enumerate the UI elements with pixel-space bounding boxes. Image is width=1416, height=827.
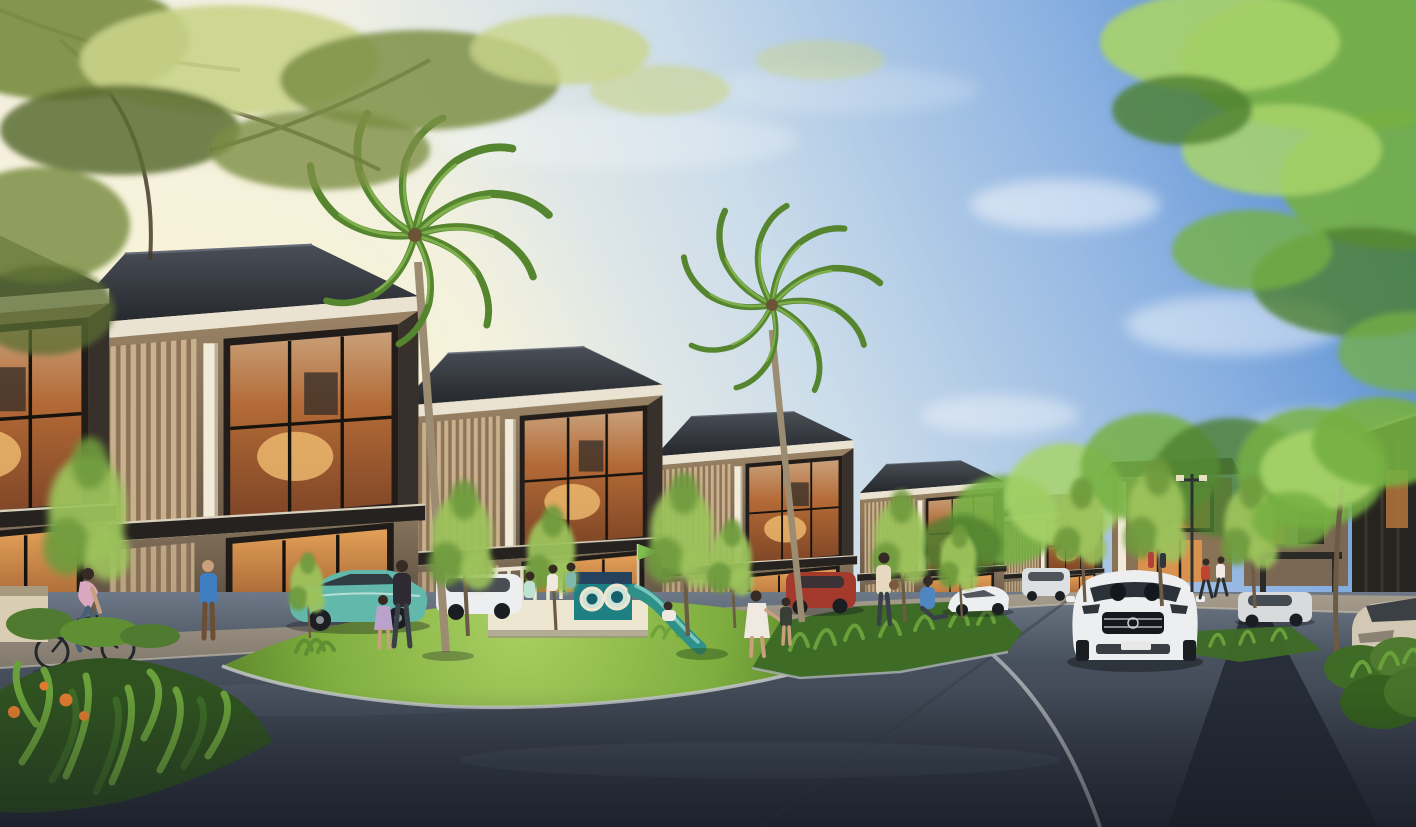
estate-wheel [448,604,464,620]
head [782,598,791,607]
minivan-wheel [1027,591,1037,601]
kid-head [549,565,558,574]
palm-crown-center [408,228,422,242]
planter-shade [0,586,48,596]
green-foliage [1172,210,1332,290]
mercedes-grille [1102,612,1164,634]
kid-head [526,572,535,581]
white-sedan-driving [1066,570,1205,672]
head [202,560,214,572]
rendering-stage [0,0,1416,827]
child-dress [374,606,393,630]
red-parked-car [780,572,864,616]
olive-foliage [590,65,730,115]
torso [1201,566,1210,581]
olive-foliage [755,40,885,80]
teal-hub [316,616,324,624]
woman-head [396,560,408,572]
tree-foliage [1252,492,1332,548]
head [1218,557,1225,564]
driver-silhouette [1110,583,1126,601]
head [1203,559,1210,566]
cloud [920,395,1080,435]
porthole-inner [611,591,623,603]
head [751,591,762,602]
palm-base-shadow [422,651,474,661]
estate-scene [0,0,1416,827]
torso [1216,564,1225,579]
child-head [378,595,388,605]
porthole-inner [587,594,598,605]
olive-foliage [210,110,430,190]
red-wheel [833,599,848,614]
shrub [120,624,180,648]
head [664,602,673,611]
torso [876,565,891,595]
coupe-wheel [992,603,1004,615]
passenger-silhouette [1144,583,1160,601]
rider-head [82,568,94,580]
minivan-glass [1028,572,1064,581]
kid-torso [524,581,535,598]
kid-torso [547,574,558,591]
kid-torso [566,572,576,588]
side-mirror [1066,596,1075,602]
head [923,576,933,586]
green-foliage [1112,75,1252,145]
kid-head [567,563,576,572]
play-deck-shadow [488,630,648,638]
play-panel-navy [574,572,632,586]
torso [200,573,217,605]
dress [744,603,770,638]
lamp-head [1176,475,1184,481]
bottom-vignette [0,690,1416,827]
red-glass [796,576,844,588]
torso [662,610,676,621]
silver-wheel [1246,615,1259,628]
silver-sedan-distant [1235,592,1315,628]
figure [1148,552,1154,568]
torso [780,607,792,627]
estate-wheel [494,603,510,619]
slide-end-shadow [676,648,728,660]
silver-wheel [1290,614,1303,627]
front-wheel [1183,640,1196,661]
figure [1160,553,1166,568]
olive-foliage [0,85,240,175]
orange-flower [40,682,49,691]
bag [889,580,899,590]
cloud [970,179,1160,231]
lamp-head [1199,475,1207,481]
torso [920,587,935,609]
minivan-wheel [1055,591,1065,601]
license-plate [1121,641,1151,650]
palm-crown-center [766,299,778,311]
woman-torso [393,573,411,607]
head [879,553,890,564]
front-wheel [1076,640,1089,661]
